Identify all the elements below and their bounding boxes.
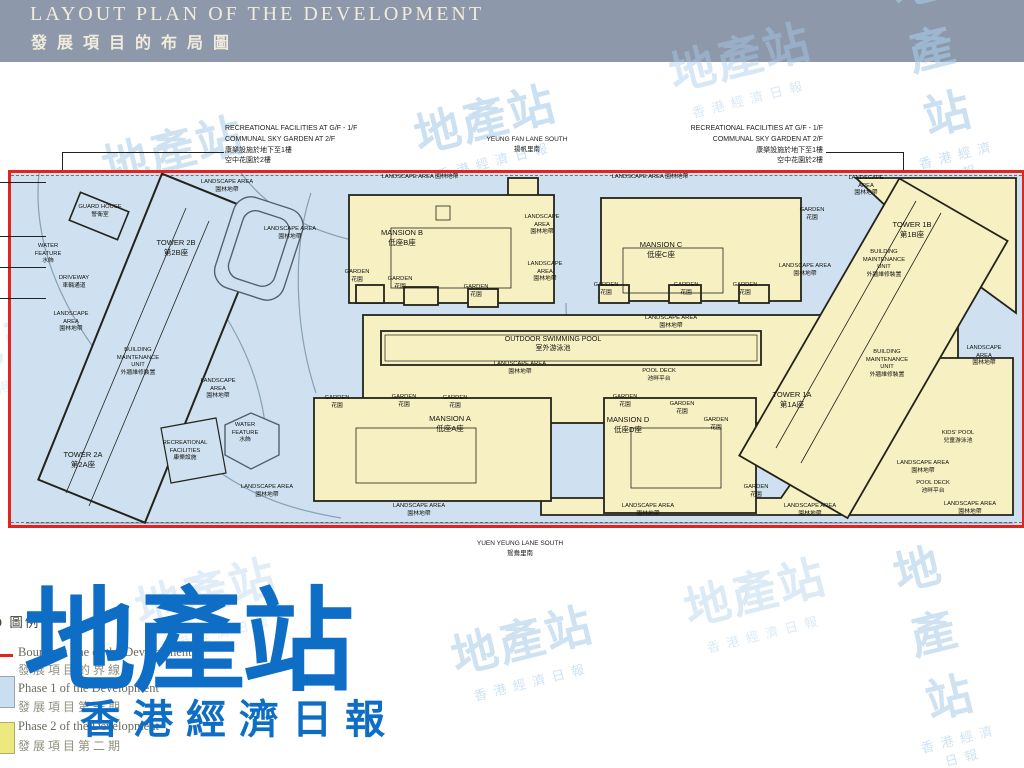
legend-item-boundary-en: Boundary line of the Development [18,645,192,660]
street-label-yeung-fan-lane-south: YEUNG FAN LANE SOUTH 揚帆里南 [487,136,568,153]
legend-swatch-boundary [0,654,13,657]
watermark-text: 地產站 [444,588,600,687]
annotation-line: COMMUNAL SKY GARDEN AT 2/F [713,136,823,143]
watermark: 地產站香港經濟日報 [128,540,289,659]
edge-tick [0,236,46,237]
page: LAYOUT PLAN OF THE DEVELOPMENT 發展項目的布局圖 … [0,0,1024,768]
page-title-zh: 發展項目的布局圖 [31,29,239,53]
garden-pad [739,285,769,303]
mansion-a-footprint [314,398,551,501]
street-label-yuen-yeung-lane-south: YUEN YEUNG LANE SOUTH 鴛鴦里南 [477,540,563,557]
site-plan-drawing [11,173,1022,525]
legend-swatch-phase2 [0,722,15,754]
street-name-zh: 鴛鴦里南 [477,547,563,557]
watermark: 地產站香港經濟日報 [867,524,1008,768]
watermark: 地產站香港經濟日報 [677,540,838,659]
edge-tick [0,298,46,299]
street-name-zh: 揚帆里南 [487,143,568,153]
watermark-subtext: 香港經濟日報 [916,718,1009,768]
annotation-line: 空中花園於2樓 [777,157,823,164]
garden-pad [599,285,629,303]
leader-line [62,152,63,170]
mansion-d-footprint [604,398,756,513]
legend-swatch-phase1 [0,676,15,708]
page-title-en: LAYOUT PLAN OF THE DEVELOPMENT [30,3,484,26]
watermark-subtext: 香港經濟日報 [693,606,837,659]
legend-item-phase2-zh: 發展項目第二期 [18,737,123,754]
annotation-line: RECREATIONAL FACILITIES AT G/F - 1/F [225,125,357,132]
garden-pad [404,287,438,305]
boundary-tick-line [11,175,1022,176]
watermark: 地產站香港經濟日報 [407,67,568,186]
garden-pad [468,289,498,307]
legend-item-phase1-zh: 發展項目第一期 [18,698,123,715]
legend-item-phase1-en: Phase 1 of the Development [18,681,159,696]
watermark-text: 地產站 [677,540,833,639]
header-bar: LAYOUT PLAN OF THE DEVELOPMENT 發展項目的布局圖 [0,0,1024,62]
garden-pad [356,285,384,303]
leader-line [62,152,224,153]
annotation-line: 康樂設施於地下至1樓 [225,147,292,154]
annotation-line: 空中花園於2樓 [225,157,271,164]
legend-item-boundary-zh: 發展項目的界線 [18,661,123,678]
legend-item-phase2-en: Phase 2 of the Development [18,719,159,734]
watermark-subtext: 香港經濟日報 [460,654,604,707]
watermark: 地產站香港經濟日報 [444,588,605,707]
annotation-recreational-left: RECREATIONAL FACILITIES AT G/F - 1/F COM… [225,124,357,167]
legend-title: LEGEND 圖例 [0,611,40,631]
site-plan [8,170,1024,528]
edge-tick [0,267,46,268]
annotation-line: RECREATIONAL FACILITIES AT G/F - 1/F [691,125,823,132]
edge-tick [0,182,46,183]
watermark-text: 地產站 [128,540,284,639]
outdoor-swimming-pool [381,331,761,365]
watermark-subtext: 香港經濟日報 [678,71,822,124]
street-name-en: YEUNG FAN LANE SOUTH [487,136,568,143]
annotation-recreational-right: RECREATIONAL FACILITIES AT G/F - 1/F COM… [691,124,823,167]
recreational-facilities-footprint [161,418,226,483]
annotation-line: COMMUNAL SKY GARDEN AT 2/F [225,136,335,143]
watermark-text: 地產站 [867,524,998,737]
boundary-tick-line [11,522,1022,523]
garden-pad [669,285,701,303]
street-name-en: YUEN YEUNG LANE SOUTH [477,540,563,547]
leader-line [826,152,903,153]
annotation-line: 康樂設施於地下至1樓 [756,147,823,154]
